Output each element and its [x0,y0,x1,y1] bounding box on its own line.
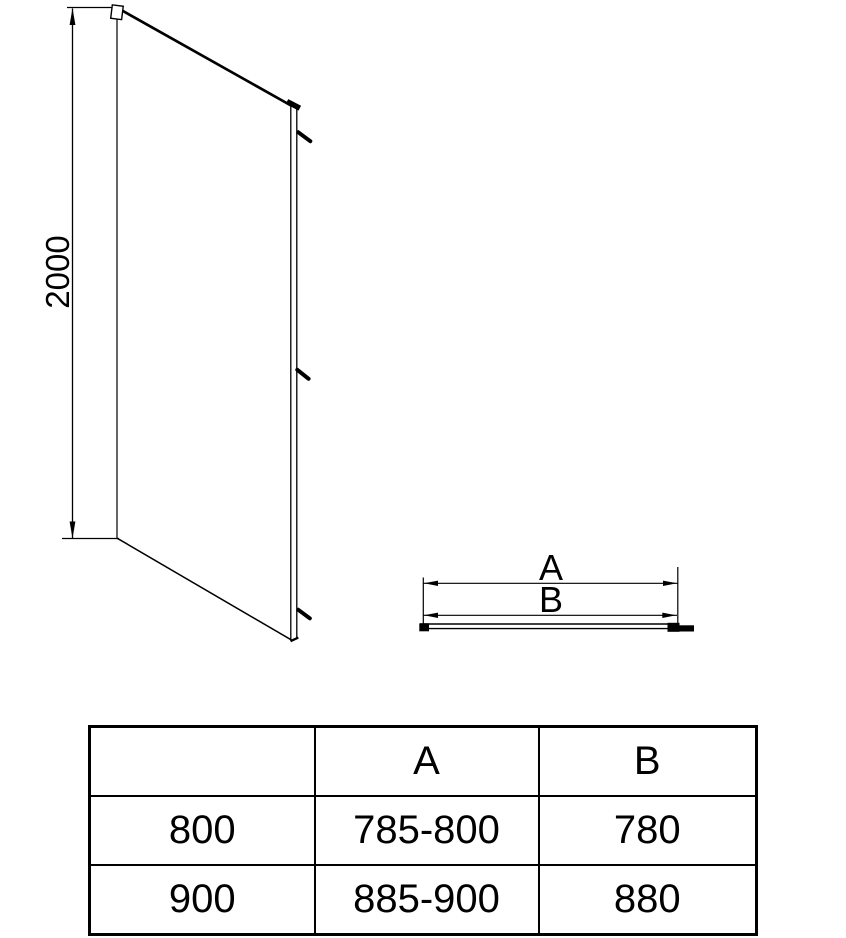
panel-bottom-edge [117,538,292,640]
wall-profile-flange [679,625,694,631]
glass-panel-outline [117,8,300,641]
technical-drawing-page: 2000 [0,0,846,938]
arrow-left-icon [424,581,438,586]
panel-top-cap [287,102,300,109]
dimensions-table: A B 800 785-800 780 900 885-900 880 [88,725,758,936]
arrow-left-icon [424,613,438,618]
header-cell-b: B [539,727,757,796]
cell-b: 880 [539,865,757,935]
height-dim-value: 2000 [39,235,76,308]
cell-a: 885-900 [315,865,539,935]
arrow-down-icon [70,522,76,539]
panel-top-edge [119,9,292,106]
cell-a: 785-800 [315,796,539,865]
cell-size: 800 [90,796,315,865]
arrow-up-icon [70,8,76,25]
dimension-b: B [423,579,677,620]
edge-fixing-brackets [297,132,310,618]
arrow-right-icon [662,613,676,618]
wall-profile-bracket [111,5,124,20]
panel-bar-section [419,623,694,632]
bar-left-end-cap [419,623,429,631]
plan-view: A B [419,547,694,632]
fixing-bracket-bottom [298,610,310,619]
drawing-canvas: 2000 [0,0,846,700]
height-dimension: 2000 [39,8,119,539]
header-cell-a: A [315,727,539,796]
arrow-right-icon [663,581,677,586]
panel-bottom-cap [291,638,299,642]
cell-size: 900 [90,865,315,935]
table-row: 900 885-900 880 [90,865,757,935]
cell-b: 780 [539,796,757,865]
table-row: 800 785-800 780 [90,796,757,865]
elevation-view: 2000 [39,5,310,641]
fixing-bracket-middle [297,370,308,379]
wall-profile-section [668,623,680,632]
dim-b-label: B [539,579,563,620]
table-header-row: A B [90,727,757,796]
header-cell-size [90,727,315,796]
fixing-bracket-top [298,132,310,141]
